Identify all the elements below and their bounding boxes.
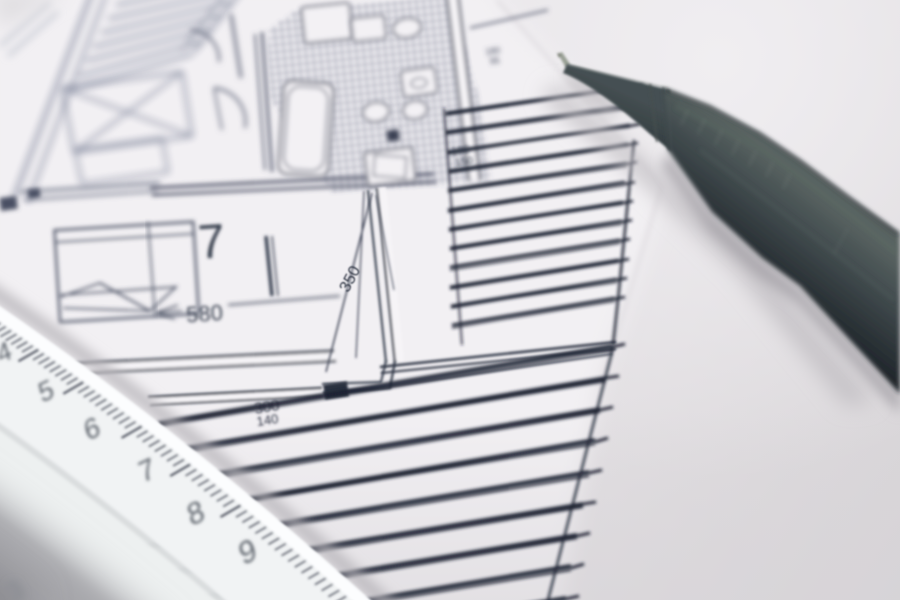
svg-text:7: 7	[196, 215, 226, 270]
svg-text:95: 95	[489, 55, 500, 66]
